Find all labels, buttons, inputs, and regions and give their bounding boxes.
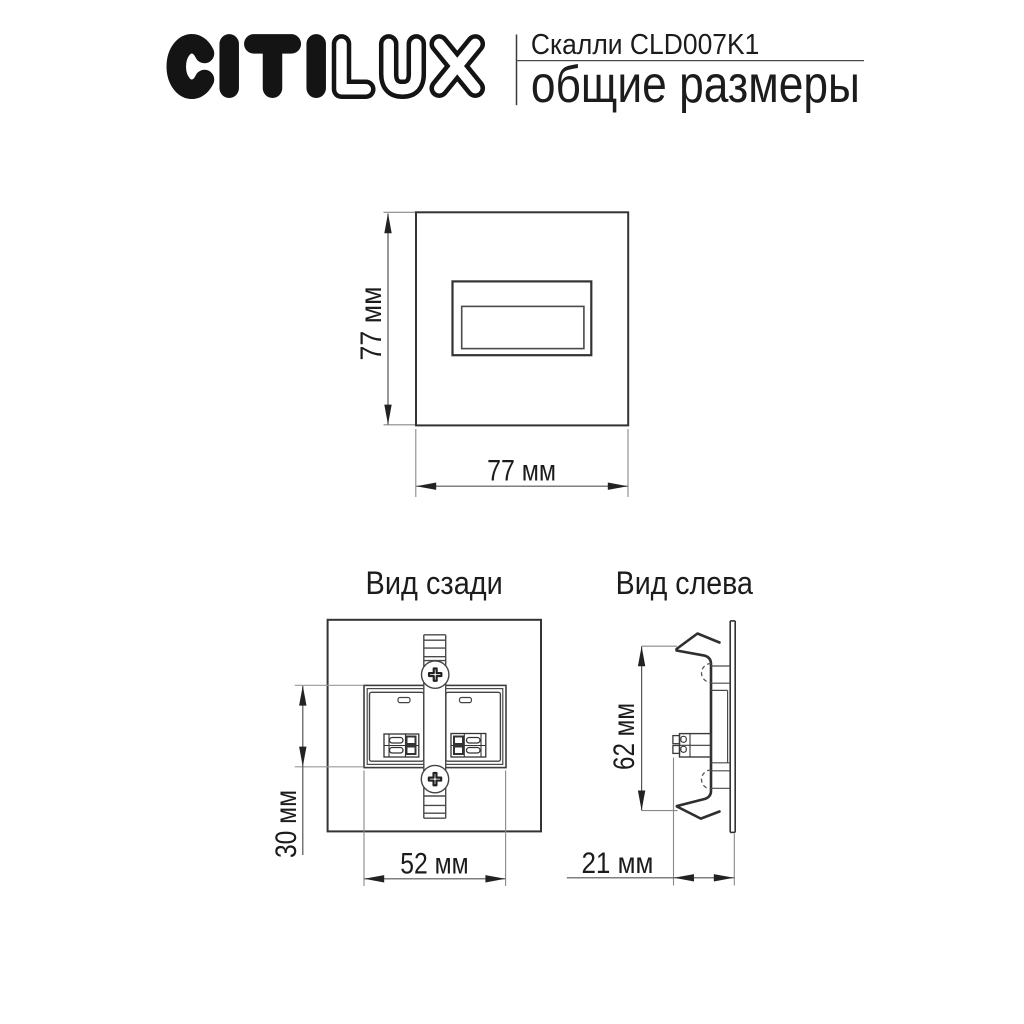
svg-text:52 мм: 52 мм	[400, 847, 468, 880]
svg-text:30 мм: 30 мм	[270, 790, 303, 858]
svg-text:77 мм: 77 мм	[355, 287, 388, 361]
svg-text:Вид слева: Вид слева	[616, 565, 753, 601]
svg-text:62 мм: 62 мм	[608, 703, 641, 770]
svg-text:77 мм: 77 мм	[487, 454, 556, 487]
svg-text:общие размеры: общие размеры	[531, 56, 860, 114]
svg-text:21 мм: 21 мм	[581, 847, 653, 880]
svg-text:Вид сзади: Вид сзади	[366, 565, 503, 601]
